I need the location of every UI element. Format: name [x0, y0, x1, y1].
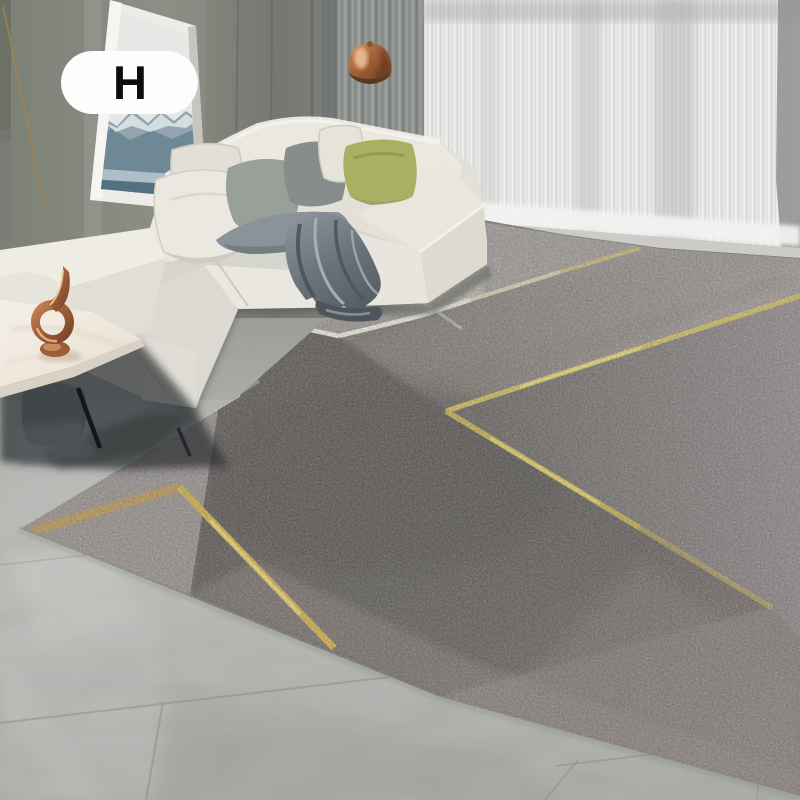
svg-text:H: H [113, 56, 147, 109]
